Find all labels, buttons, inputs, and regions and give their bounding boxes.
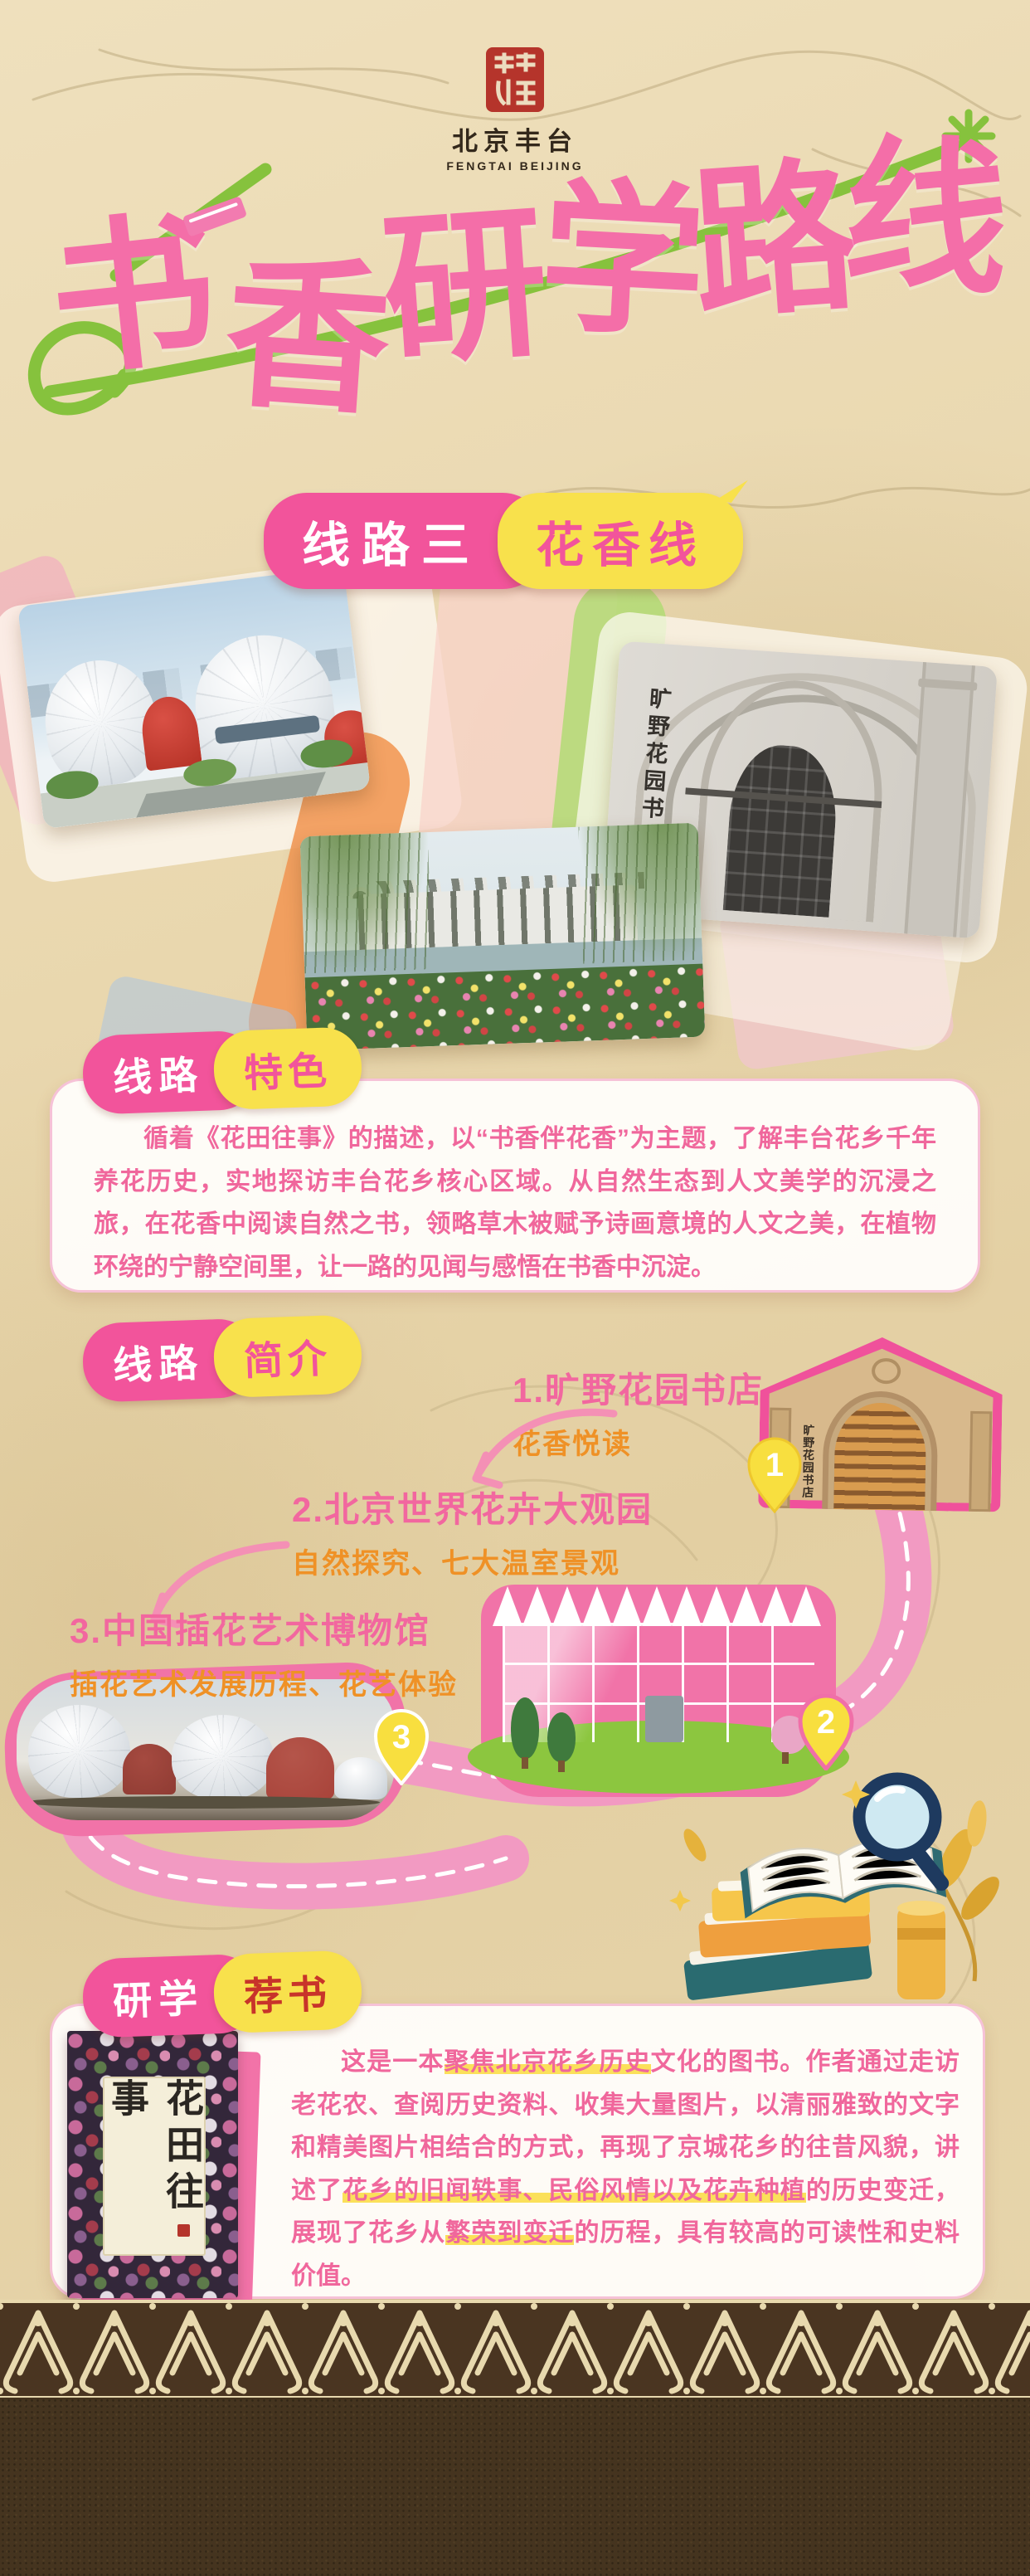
recommend-card: 花田往事 这是一本聚焦北京花乡历史文化的图书。作者通过走访老花农、查阅历史资料、… xyxy=(50,2004,985,2299)
recommend-paragraph: 这是一本聚焦北京花乡历史文化的图书。作者通过走访老花农、查阅历史资料、收集大量图… xyxy=(291,2041,960,2298)
intro-badge-right: 简介 xyxy=(212,1314,362,1398)
cypress-tree xyxy=(547,1712,576,1762)
logo-name-cn: 北京丰台 xyxy=(0,120,1030,158)
stop3-subtitle: 插花艺术发展历程、花艺体验 xyxy=(70,1662,458,1702)
willow-tree xyxy=(300,823,432,975)
highlighted-text: 聚焦北京花乡历史 xyxy=(445,2048,651,2076)
pin3-number: 3 xyxy=(392,1719,411,1755)
red-dome xyxy=(266,1737,334,1799)
title-char: 研 xyxy=(377,200,552,375)
books-magnifier-illustration xyxy=(647,1765,1003,2028)
title-char: 香 xyxy=(220,250,395,425)
willow-tree xyxy=(578,823,705,964)
book-seal-icon xyxy=(177,2224,190,2237)
pencil-cup xyxy=(897,1901,945,1999)
domes-base xyxy=(24,1796,380,1809)
photo-dome-museum xyxy=(17,567,371,829)
logo-block: 北京丰台 FENGTAI BEIJING xyxy=(0,46,1030,173)
arched-bookshelf-door xyxy=(833,1402,927,1511)
round-window xyxy=(872,1358,901,1384)
map-pin-1: 1 xyxy=(745,1437,804,1513)
book-cover: 花田往事 xyxy=(67,2031,238,2298)
stop3-label: 3.中国插花艺术博物馆 插花艺术发展历程、花艺体验 xyxy=(70,1603,458,1702)
pin1-number: 1 xyxy=(765,1447,784,1483)
title-char: 路 xyxy=(687,153,862,329)
book-cover-panel: 花田往事 xyxy=(103,2077,205,2257)
recommend-badge: 研学 荐书 xyxy=(81,1950,362,2038)
stop2-title: 2.北京世界花卉大观园 xyxy=(292,1482,653,1532)
flower-bed xyxy=(305,964,706,1050)
map-pin-3: 3 xyxy=(372,1709,431,1785)
column-right xyxy=(969,1411,992,1512)
photo-flower-park xyxy=(300,823,706,1051)
book-title: 花田往事 xyxy=(100,2078,209,2255)
logo-name-en: FENGTAI BEIJING xyxy=(0,159,1030,173)
greenhouse-illustration xyxy=(489,1593,828,1789)
recommend-text-block: 这是一本聚焦北京花乡历史文化的图书。作者通过走访老花农、查阅历史资料、收集大量图… xyxy=(291,2041,960,2298)
feature-paragraph: 循着《花田往事》的描述，以“书香伴花香”为主题，了解丰台花乡千年养花历史，实地探… xyxy=(94,1118,936,1288)
map-pin-2: 2 xyxy=(796,1694,856,1770)
footer-ornament-band xyxy=(0,2300,1030,2401)
seal-icon xyxy=(485,46,545,113)
cypress-tree xyxy=(511,1697,539,1759)
feature-badge-right: 特色 xyxy=(212,1026,362,1110)
feature-badge: 线路 特色 xyxy=(81,1026,362,1115)
poster: 北京丰台 FENGTAI BEIJING 书香研学路线 线路三 花香线 xyxy=(0,0,1030,2576)
stop3-title: 3.中国插花艺术博物馆 xyxy=(70,1603,458,1653)
highlighted-text: 花乡的旧闻轶事、民俗风情以及花卉种植 xyxy=(343,2177,806,2204)
plain-text: 这是一本 xyxy=(341,2048,445,2076)
title-char: 学 xyxy=(537,175,709,348)
photo-collage: 旷野花园书店 xyxy=(0,571,1030,1045)
intro-badge: 线路 简介 xyxy=(81,1314,362,1403)
greenhouse-door xyxy=(645,1696,683,1742)
dark-red-dome xyxy=(123,1744,176,1794)
white-dome xyxy=(28,1705,130,1798)
route-banner: 线路三 花香线 xyxy=(264,493,743,589)
recommend-badge-right: 荐书 xyxy=(212,1950,362,2033)
route-name-pill: 花香线 xyxy=(498,493,743,589)
pin2-number: 2 xyxy=(817,1704,835,1741)
stop2-label: 2.北京世界花卉大观园 自然探究、七大温室景观 xyxy=(292,1482,653,1581)
footer-solid-band xyxy=(0,2398,1030,2576)
highlighted-text: 繁荣到变迁 xyxy=(445,2219,574,2247)
white-dome xyxy=(172,1715,274,1799)
stop2-subtitle: 自然探究、七大温室景观 xyxy=(292,1541,653,1581)
